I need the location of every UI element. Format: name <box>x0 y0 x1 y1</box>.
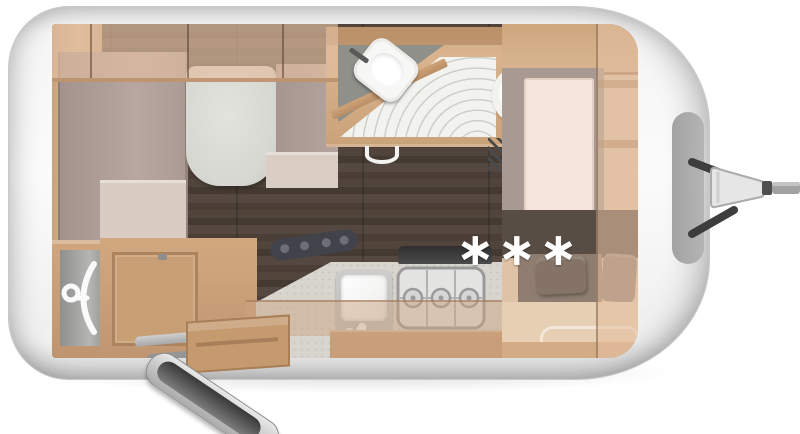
hanger-icon <box>60 258 104 338</box>
asterisk-marks: ∗∗∗ <box>456 229 546 269</box>
bench-latch <box>158 254 167 260</box>
handle-hole <box>299 241 309 251</box>
lounge-cushion-left <box>100 180 186 242</box>
interior-floor: ∗∗∗ <box>52 24 638 358</box>
locker-divider <box>187 24 189 78</box>
step-drawer-line <box>196 337 278 347</box>
lounge-cushion-right <box>266 152 338 188</box>
cooker-lid-handle <box>269 228 359 262</box>
hitch-coupler-highlight <box>772 182 800 186</box>
bed-mattress <box>524 78 594 216</box>
locker-divider <box>90 24 92 78</box>
handle-hole <box>280 244 290 254</box>
bathroom <box>326 27 510 147</box>
overhead-lockers <box>52 24 338 82</box>
caravan-floorplan-image: ∗∗∗ <box>0 0 800 434</box>
tow-hitch <box>688 148 800 252</box>
locker-divider <box>282 24 284 78</box>
hitch-collar <box>762 181 772 195</box>
bed-side-lockers <box>596 24 638 358</box>
dinette-table <box>186 66 276 186</box>
handle-hole <box>339 235 349 245</box>
basin-bowl <box>363 46 410 92</box>
drawbar-lower <box>692 210 734 234</box>
drain-pipe <box>365 146 399 164</box>
step-drawer <box>186 314 290 373</box>
handle-hole <box>321 238 331 248</box>
bathroom-overhead-cabinet <box>326 27 510 45</box>
